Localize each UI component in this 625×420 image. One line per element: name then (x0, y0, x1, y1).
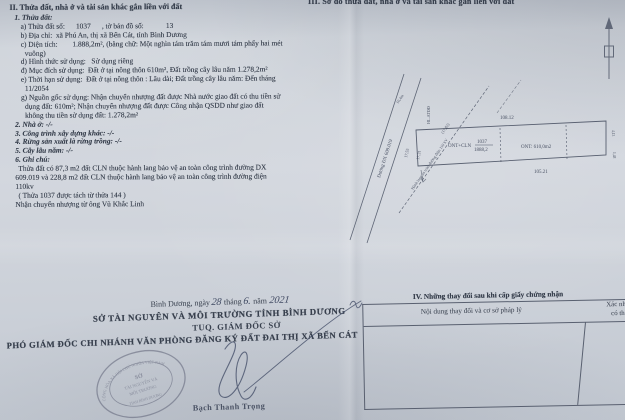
dim-left-1: 17,55 (403, 148, 411, 158)
signature (219, 301, 362, 399)
dim-right-2: 1,48 (611, 152, 616, 158)
north-arrow-head (605, 17, 613, 29)
hl-atdd-label: HL.ATĐĐ (426, 106, 431, 124)
parcel-divider-2 (566, 125, 567, 159)
signature-main-stroke (219, 342, 256, 399)
dim-bottom: 105.21 (534, 170, 548, 175)
dim-right-1: 4,13 (610, 130, 615, 136)
parcel-area-label: 1888,2 (474, 148, 488, 153)
road-edge-right (367, 78, 421, 243)
road-label: Đường ĐX 609.019 (377, 139, 394, 179)
land-certificate-page: II. Thửa đất, nhà ở và tài sản khác gắn … (0, 0, 625, 420)
signature-tail-stroke (244, 301, 361, 392)
power-line-label: Hành lang an toàn đường điện 110 kV (410, 138, 449, 191)
ont-area-label: ONT: 610,0m2 (521, 145, 552, 150)
official-seal: CỘNG HÒA XÃ HỘI CHỦ NGHĨA VIỆT NAM SỞ TÀ… (89, 340, 194, 420)
north-arrow-icon (605, 17, 614, 79)
parcel-divider-1 (500, 128, 501, 163)
parcel-use-label: ONT+CLN (448, 144, 471, 149)
dim-left-2: 17,31 (415, 150, 423, 160)
sketch-overlay: Đường ĐX 609.019 Hành lang an toàn đường… (0, 0, 625, 420)
dim-small-top: 10,4m (395, 93, 406, 105)
dim-top: 108.12 (500, 116, 514, 121)
parcel-number-label: 1037 (477, 140, 488, 145)
power-line-corridor-2 (497, 80, 521, 113)
